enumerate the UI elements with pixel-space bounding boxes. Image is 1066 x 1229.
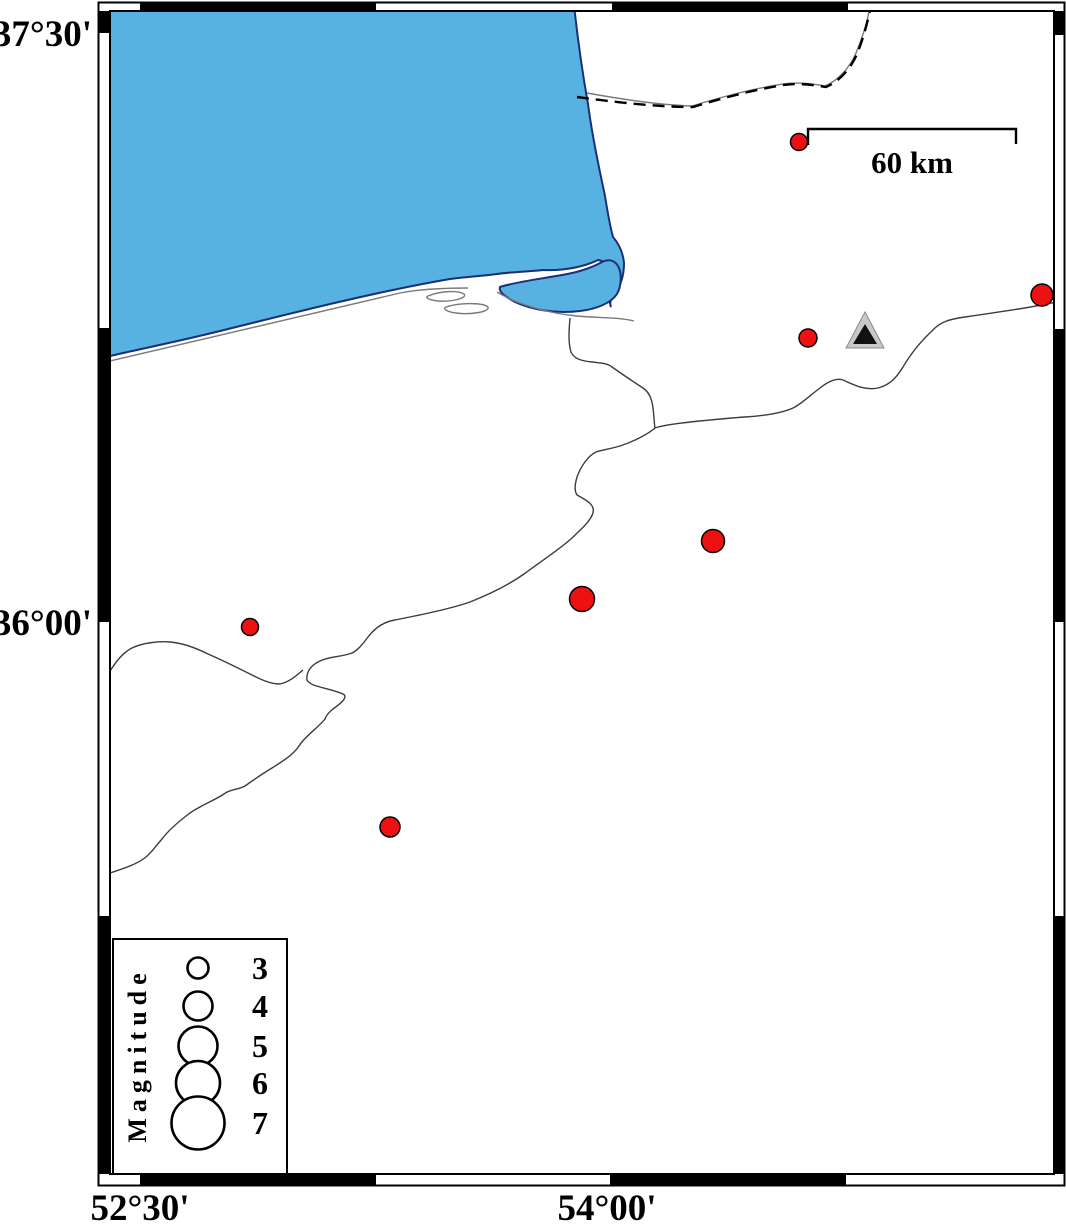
earthquake-dot	[242, 619, 259, 636]
border-dashed-line	[577, 11, 870, 107]
legend-label-m6: 6	[252, 1065, 268, 1101]
scale-bar-bracket	[808, 129, 1016, 145]
earthquake-dot	[702, 530, 725, 553]
coastline-northeast	[587, 12, 869, 106]
seismicity-map: 60 km Magnitude 34567 37°30'36°00'52°30'…	[0, 0, 1066, 1224]
river-northeast	[655, 302, 1056, 428]
coastline-islet-2	[445, 304, 488, 314]
magnitude-legend: Magnitude 34567	[113, 939, 287, 1174]
y-axis-label: 37°30'	[0, 14, 92, 55]
map-page: 60 km Magnitude 34567 37°30'36°00'52°30'…	[0, 0, 1066, 1224]
coastline-islet-1	[427, 292, 465, 302]
x-axis-label: 54°00'	[557, 1188, 656, 1224]
river-west-branch	[110, 642, 303, 684]
river-bay-outlet	[569, 318, 655, 428]
legend-circle-m4	[184, 992, 213, 1021]
x-axis-label: 52°30'	[90, 1188, 189, 1224]
earthquake-dot	[1031, 284, 1053, 306]
legend-label-m3: 3	[252, 950, 268, 986]
legend-title: Magnitude	[123, 967, 152, 1142]
y-axis-label: 36°00'	[0, 603, 92, 644]
earthquake-dot	[380, 817, 400, 837]
earthquake-dot	[791, 134, 808, 151]
scale-bar: 60 km	[808, 129, 1016, 180]
earthquake-dot	[570, 587, 595, 612]
legend-label-m4: 4	[252, 988, 268, 1024]
legend-circle-m5	[179, 1027, 218, 1066]
legend-label-m5: 5	[252, 1028, 268, 1064]
earthquake-dot	[799, 329, 817, 347]
legend-label-m7: 7	[252, 1105, 268, 1141]
river-main-stem	[110, 428, 655, 873]
station-triangle	[846, 312, 884, 348]
scale-bar-label: 60 km	[871, 145, 953, 180]
legend-circle-m3	[188, 958, 209, 979]
legend-circle-m7	[172, 1097, 225, 1150]
